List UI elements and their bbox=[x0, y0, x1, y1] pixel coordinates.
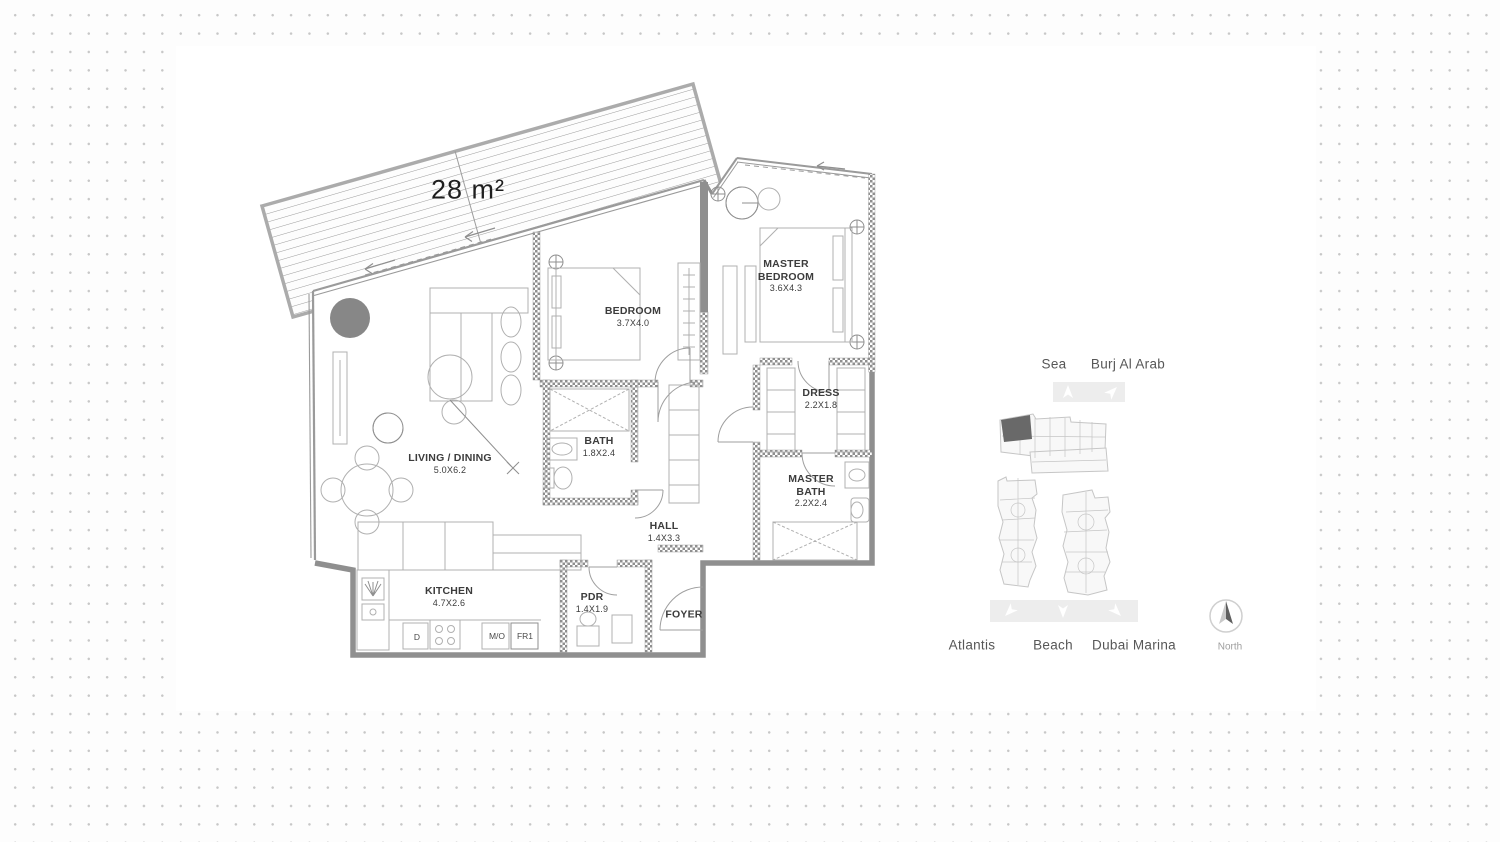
floor-plan-page: { "floor_plan": { "terrace": { "area_lab… bbox=[0, 0, 1500, 842]
appliance-label-dishwasher: D bbox=[414, 632, 420, 642]
room-label-master-bedroom: MASTER BEDROOM 3.6X4.3 bbox=[751, 246, 821, 306]
floor-plan-svg bbox=[245, 70, 895, 670]
key-plan-label-atlantis: Atlantis bbox=[949, 638, 996, 653]
appliance-label-fridge: FR1 bbox=[517, 631, 533, 641]
room-label-dress: DRESS 2.2X1.8 bbox=[802, 375, 839, 423]
building-right-tower bbox=[1062, 490, 1110, 595]
master-window-wall bbox=[869, 174, 876, 372]
key-plan-label-dubai-marina: Dubai Marina bbox=[1092, 638, 1176, 653]
terrace-area-label: 28 m² bbox=[431, 175, 505, 206]
sea-direction-bar bbox=[1053, 382, 1125, 402]
appliance-label-microwave: M/O bbox=[489, 631, 505, 641]
room-label-hall: HALL 1.4X3.3 bbox=[648, 508, 680, 556]
room-label-bedroom: BEDROOM 3.7X4.0 bbox=[605, 293, 661, 341]
interior-solid-walls bbox=[700, 182, 708, 312]
key-plan-label-burj-al-arab: Burj Al Arab bbox=[1091, 357, 1165, 372]
north-compass-icon bbox=[1210, 600, 1242, 632]
room-label-kitchen: KITCHEN 4.7X2.6 bbox=[425, 573, 473, 621]
key-plan-label-sea: Sea bbox=[1042, 357, 1067, 372]
room-label-master-bath: MASTER BATH 2.2X2.4 bbox=[780, 461, 842, 521]
key-plan-svg bbox=[940, 340, 1260, 670]
compass-north-label: North bbox=[1218, 642, 1242, 653]
room-label-pdr: PDR 1.4X1.9 bbox=[576, 579, 608, 627]
room-label-living: LIVING / DINING 5.0X6.2 bbox=[408, 440, 492, 488]
building-strip bbox=[1000, 414, 1108, 473]
building-left-tower bbox=[998, 477, 1037, 587]
room-label-foyer: FOYER bbox=[665, 597, 702, 622]
shore-direction-bar bbox=[990, 600, 1138, 622]
key-plan-label-beach: Beach bbox=[1033, 638, 1073, 653]
room-label-bath: BATH 1.8X2.4 bbox=[583, 423, 615, 471]
